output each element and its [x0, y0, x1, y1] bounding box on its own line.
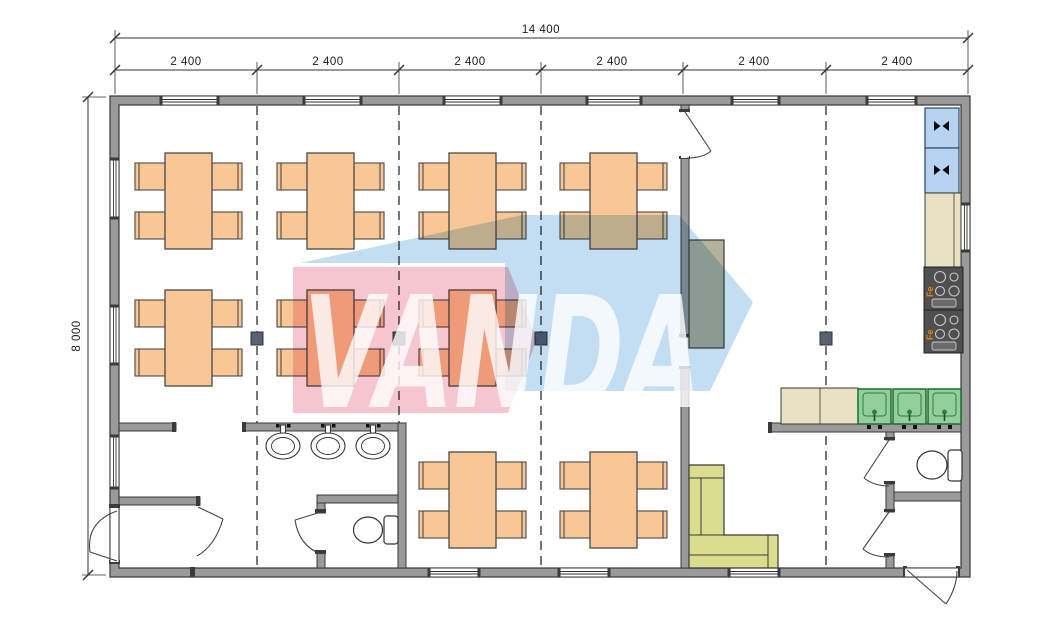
window	[110, 305, 119, 366]
dining-table-group	[419, 452, 526, 548]
door-vestibule	[197, 507, 223, 556]
window	[110, 158, 119, 220]
window	[866, 96, 918, 105]
overall-width-label: 14 400	[522, 24, 560, 36]
window	[731, 96, 781, 105]
module-width-label: 2 400	[170, 56, 201, 68]
fridge-icon	[925, 148, 959, 193]
window	[428, 568, 481, 577]
window	[110, 435, 119, 490]
kitchen-sink-icon	[858, 389, 891, 429]
stove-label: Fe	[925, 286, 935, 297]
toilet-icon	[354, 516, 399, 544]
window	[443, 96, 503, 105]
window	[303, 96, 363, 105]
watermark-text: VANDA	[303, 263, 703, 444]
window	[160, 96, 220, 105]
window	[586, 96, 643, 105]
door-toilet-1	[295, 512, 321, 554]
stove-icon: Fe	[924, 267, 963, 310]
window	[728, 568, 781, 577]
watermark: VANDA	[293, 215, 753, 444]
module-width-label: 2 400	[738, 56, 769, 68]
window	[961, 203, 970, 253]
window	[558, 568, 611, 577]
module-width-label: 2 400	[454, 56, 485, 68]
sofa	[689, 465, 778, 568]
door-exterior-right	[905, 569, 958, 605]
kitchen-counter	[925, 193, 961, 267]
dining-table-group	[135, 153, 242, 249]
module-width-label: 2 400	[312, 56, 343, 68]
module-width-label: 2 400	[881, 56, 912, 68]
dining-table-group	[560, 452, 667, 548]
module-width-label: 2 400	[596, 56, 627, 68]
overall-height-label: 8 000	[71, 320, 83, 351]
fridge-icon	[925, 108, 959, 148]
dining-table-group	[135, 290, 242, 386]
toilet-icon	[917, 450, 962, 481]
door-wc-a	[864, 440, 889, 486]
door-kitchen	[681, 112, 711, 158]
kitchen-sink-icon	[893, 389, 926, 429]
dining-table-group	[277, 153, 384, 249]
stove-icon: Fe	[924, 310, 963, 353]
floor-plan-drawing: 14 400 2 400 2 400 2 400 2 400 2 400 2 4…	[0, 0, 1047, 629]
floor-plan-page: 14 400 2 400 2 400 2 400 2 400 2 400 2 4…	[0, 0, 1047, 629]
kitchen-sink-icon	[928, 389, 961, 429]
sink-counter	[781, 388, 858, 424]
door-exterior-left	[90, 508, 119, 562]
stove-label: Fe	[925, 329, 935, 340]
door-wc-b	[863, 512, 889, 557]
